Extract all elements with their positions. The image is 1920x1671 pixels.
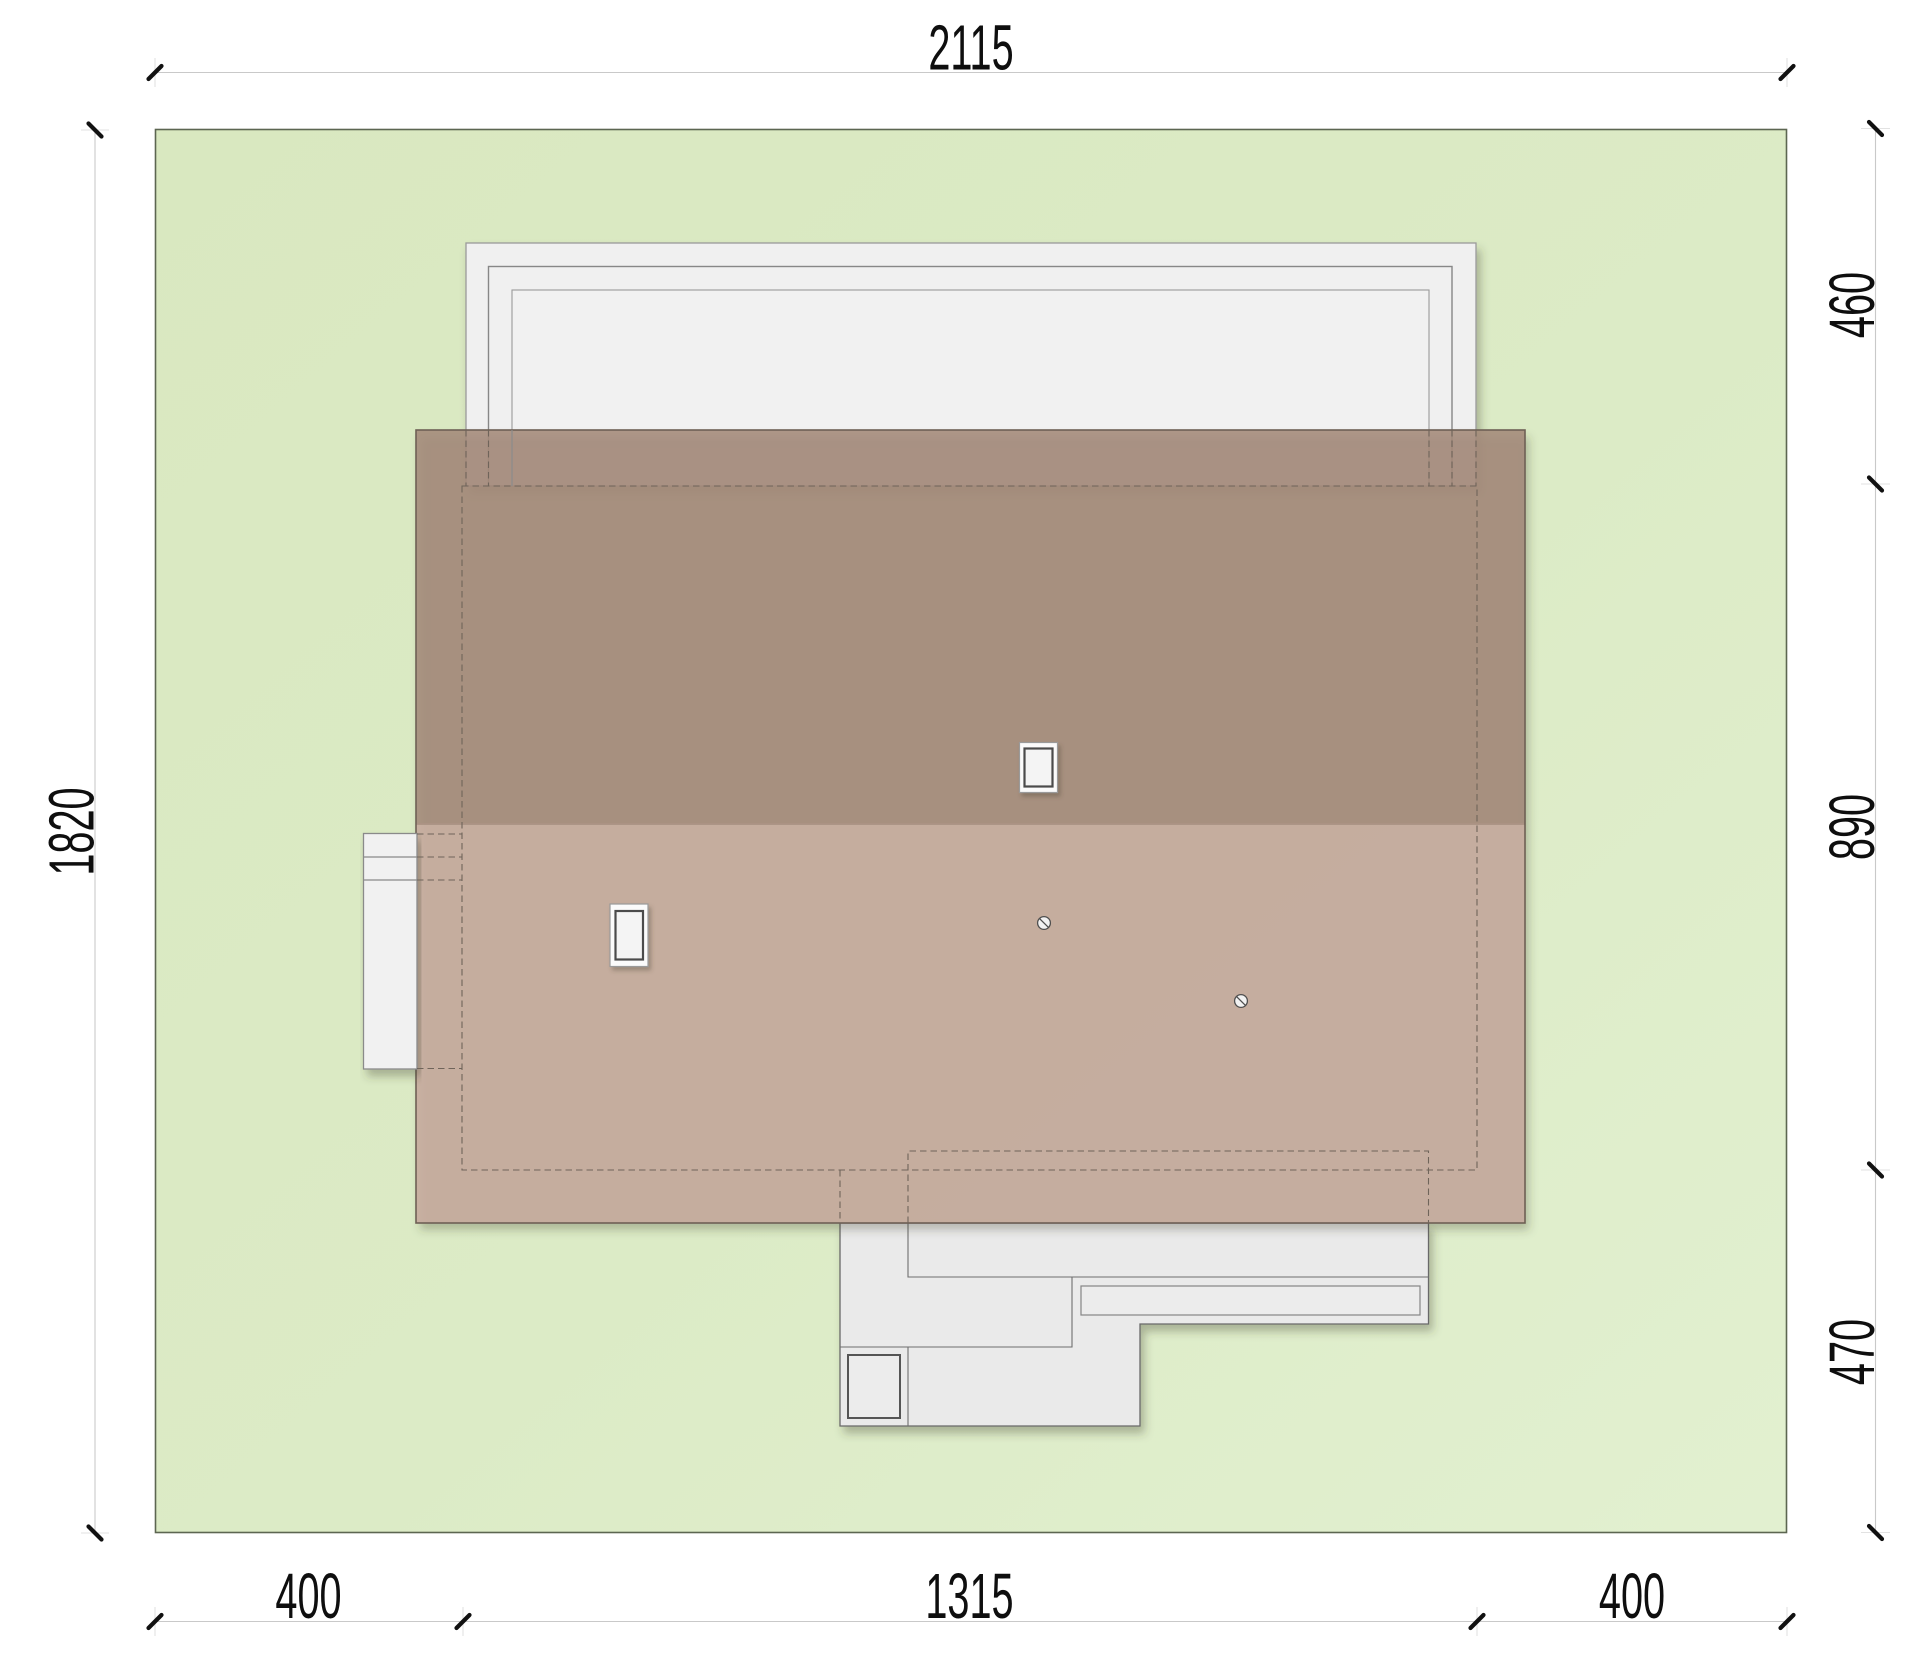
svg-text:1820: 1820 (37, 787, 108, 875)
svg-text:460: 460 (1818, 272, 1889, 338)
svg-text:400: 400 (1599, 1562, 1665, 1633)
svg-text:470: 470 (1818, 1319, 1889, 1385)
svg-text:400: 400 (275, 1562, 341, 1633)
svg-text:1315: 1315 (925, 1562, 1013, 1633)
svg-text:890: 890 (1818, 794, 1889, 860)
svg-text:2115: 2115 (928, 13, 1013, 84)
